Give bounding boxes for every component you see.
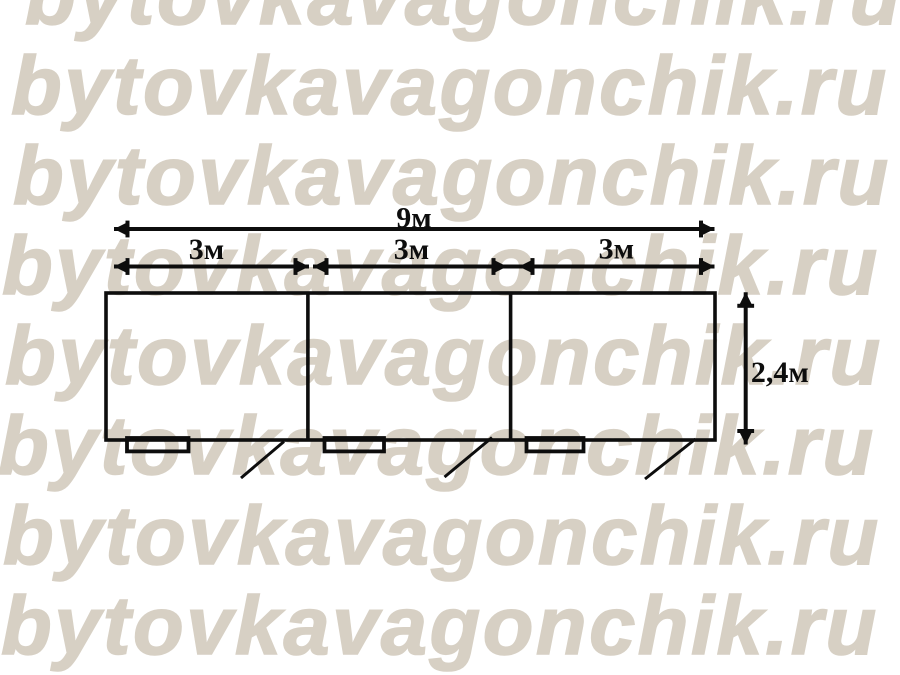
svg-text:3м: 3м: [599, 233, 634, 266]
svg-text:9м: 9м: [396, 202, 431, 235]
svg-text:3м: 3м: [189, 233, 224, 266]
svg-text:2,4м: 2,4м: [751, 356, 809, 389]
svg-text:3м: 3м: [394, 233, 429, 266]
